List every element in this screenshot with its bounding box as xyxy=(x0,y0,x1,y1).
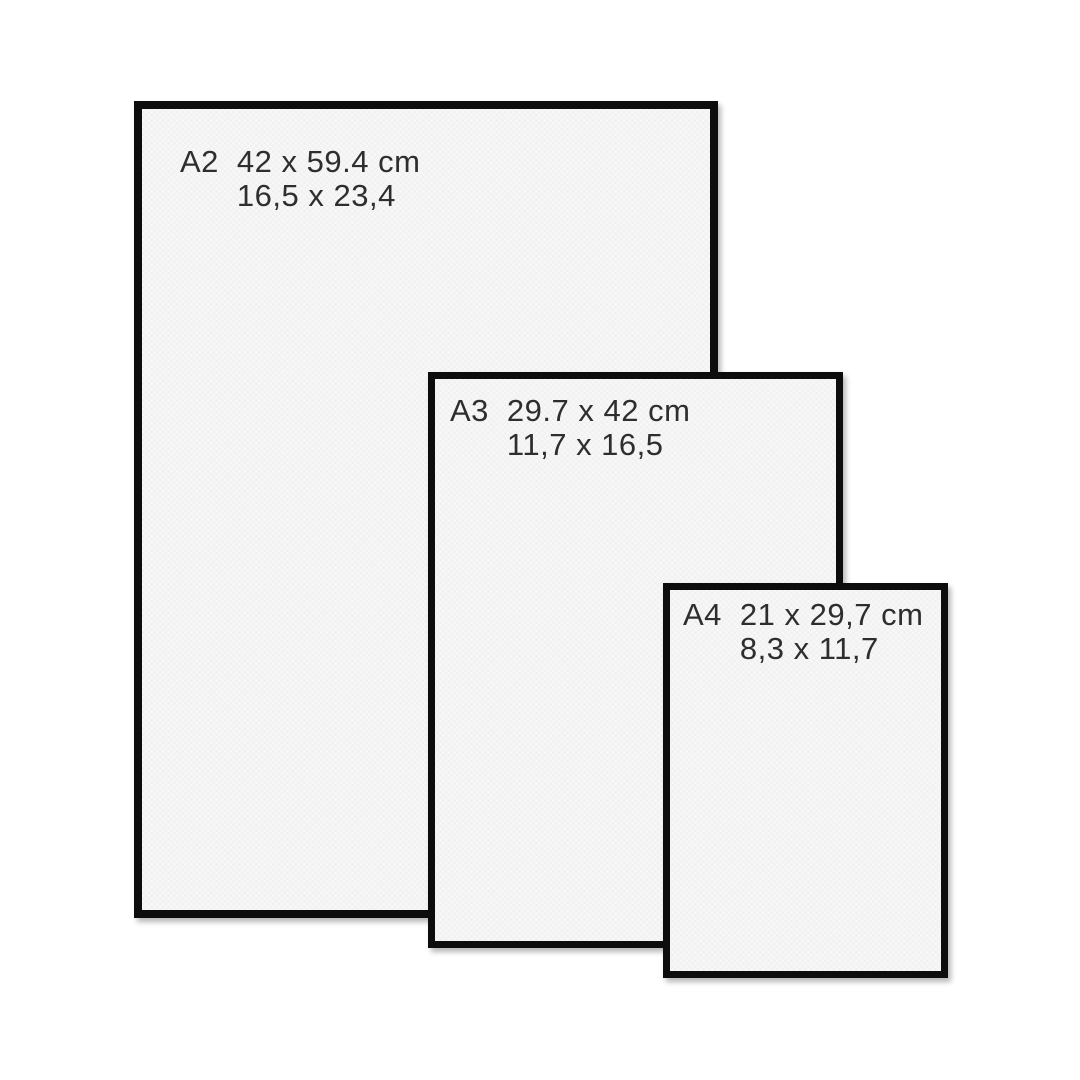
frame-a3-size-inches: 11,7 x 16,5 xyxy=(507,428,690,462)
frame-a2-size-inches: 16,5 x 23,4 xyxy=(237,179,420,213)
frame-a3-size-cm: 29.7 x 42 cm xyxy=(507,394,690,428)
frame-a4-size-inches: 8,3 x 11,7 xyxy=(740,632,923,666)
frame-a4-size-label: A4 xyxy=(683,598,722,632)
frame-a4: A4 21 x 29,7 cm 8,3 x 11,7 xyxy=(663,583,948,978)
frame-a4-label-row: A4 21 x 29,7 cm 8,3 x 11,7 xyxy=(670,590,941,666)
frame-a4-dimensions: 21 x 29,7 cm 8,3 x 11,7 xyxy=(740,598,923,666)
frame-a3-label-row: A3 29.7 x 42 cm 11,7 x 16,5 xyxy=(435,379,836,462)
frame-a2-dimensions: 42 x 59.4 cm 16,5 x 23,4 xyxy=(237,145,420,213)
frame-a4-size-cm: 21 x 29,7 cm xyxy=(740,598,923,632)
frame-a3-size-label: A3 xyxy=(450,394,489,428)
frame-a3-dimensions: 29.7 x 42 cm 11,7 x 16,5 xyxy=(507,394,690,462)
size-comparison-diagram: A2 42 x 59.4 cm 16,5 x 23,4 A3 29.7 x 42… xyxy=(0,0,1080,1080)
frame-a2-size-label: A2 xyxy=(180,145,219,179)
frame-a2-label-row: A2 42 x 59.4 cm 16,5 x 23,4 xyxy=(142,109,710,213)
frame-a2-size-cm: 42 x 59.4 cm xyxy=(237,145,420,179)
